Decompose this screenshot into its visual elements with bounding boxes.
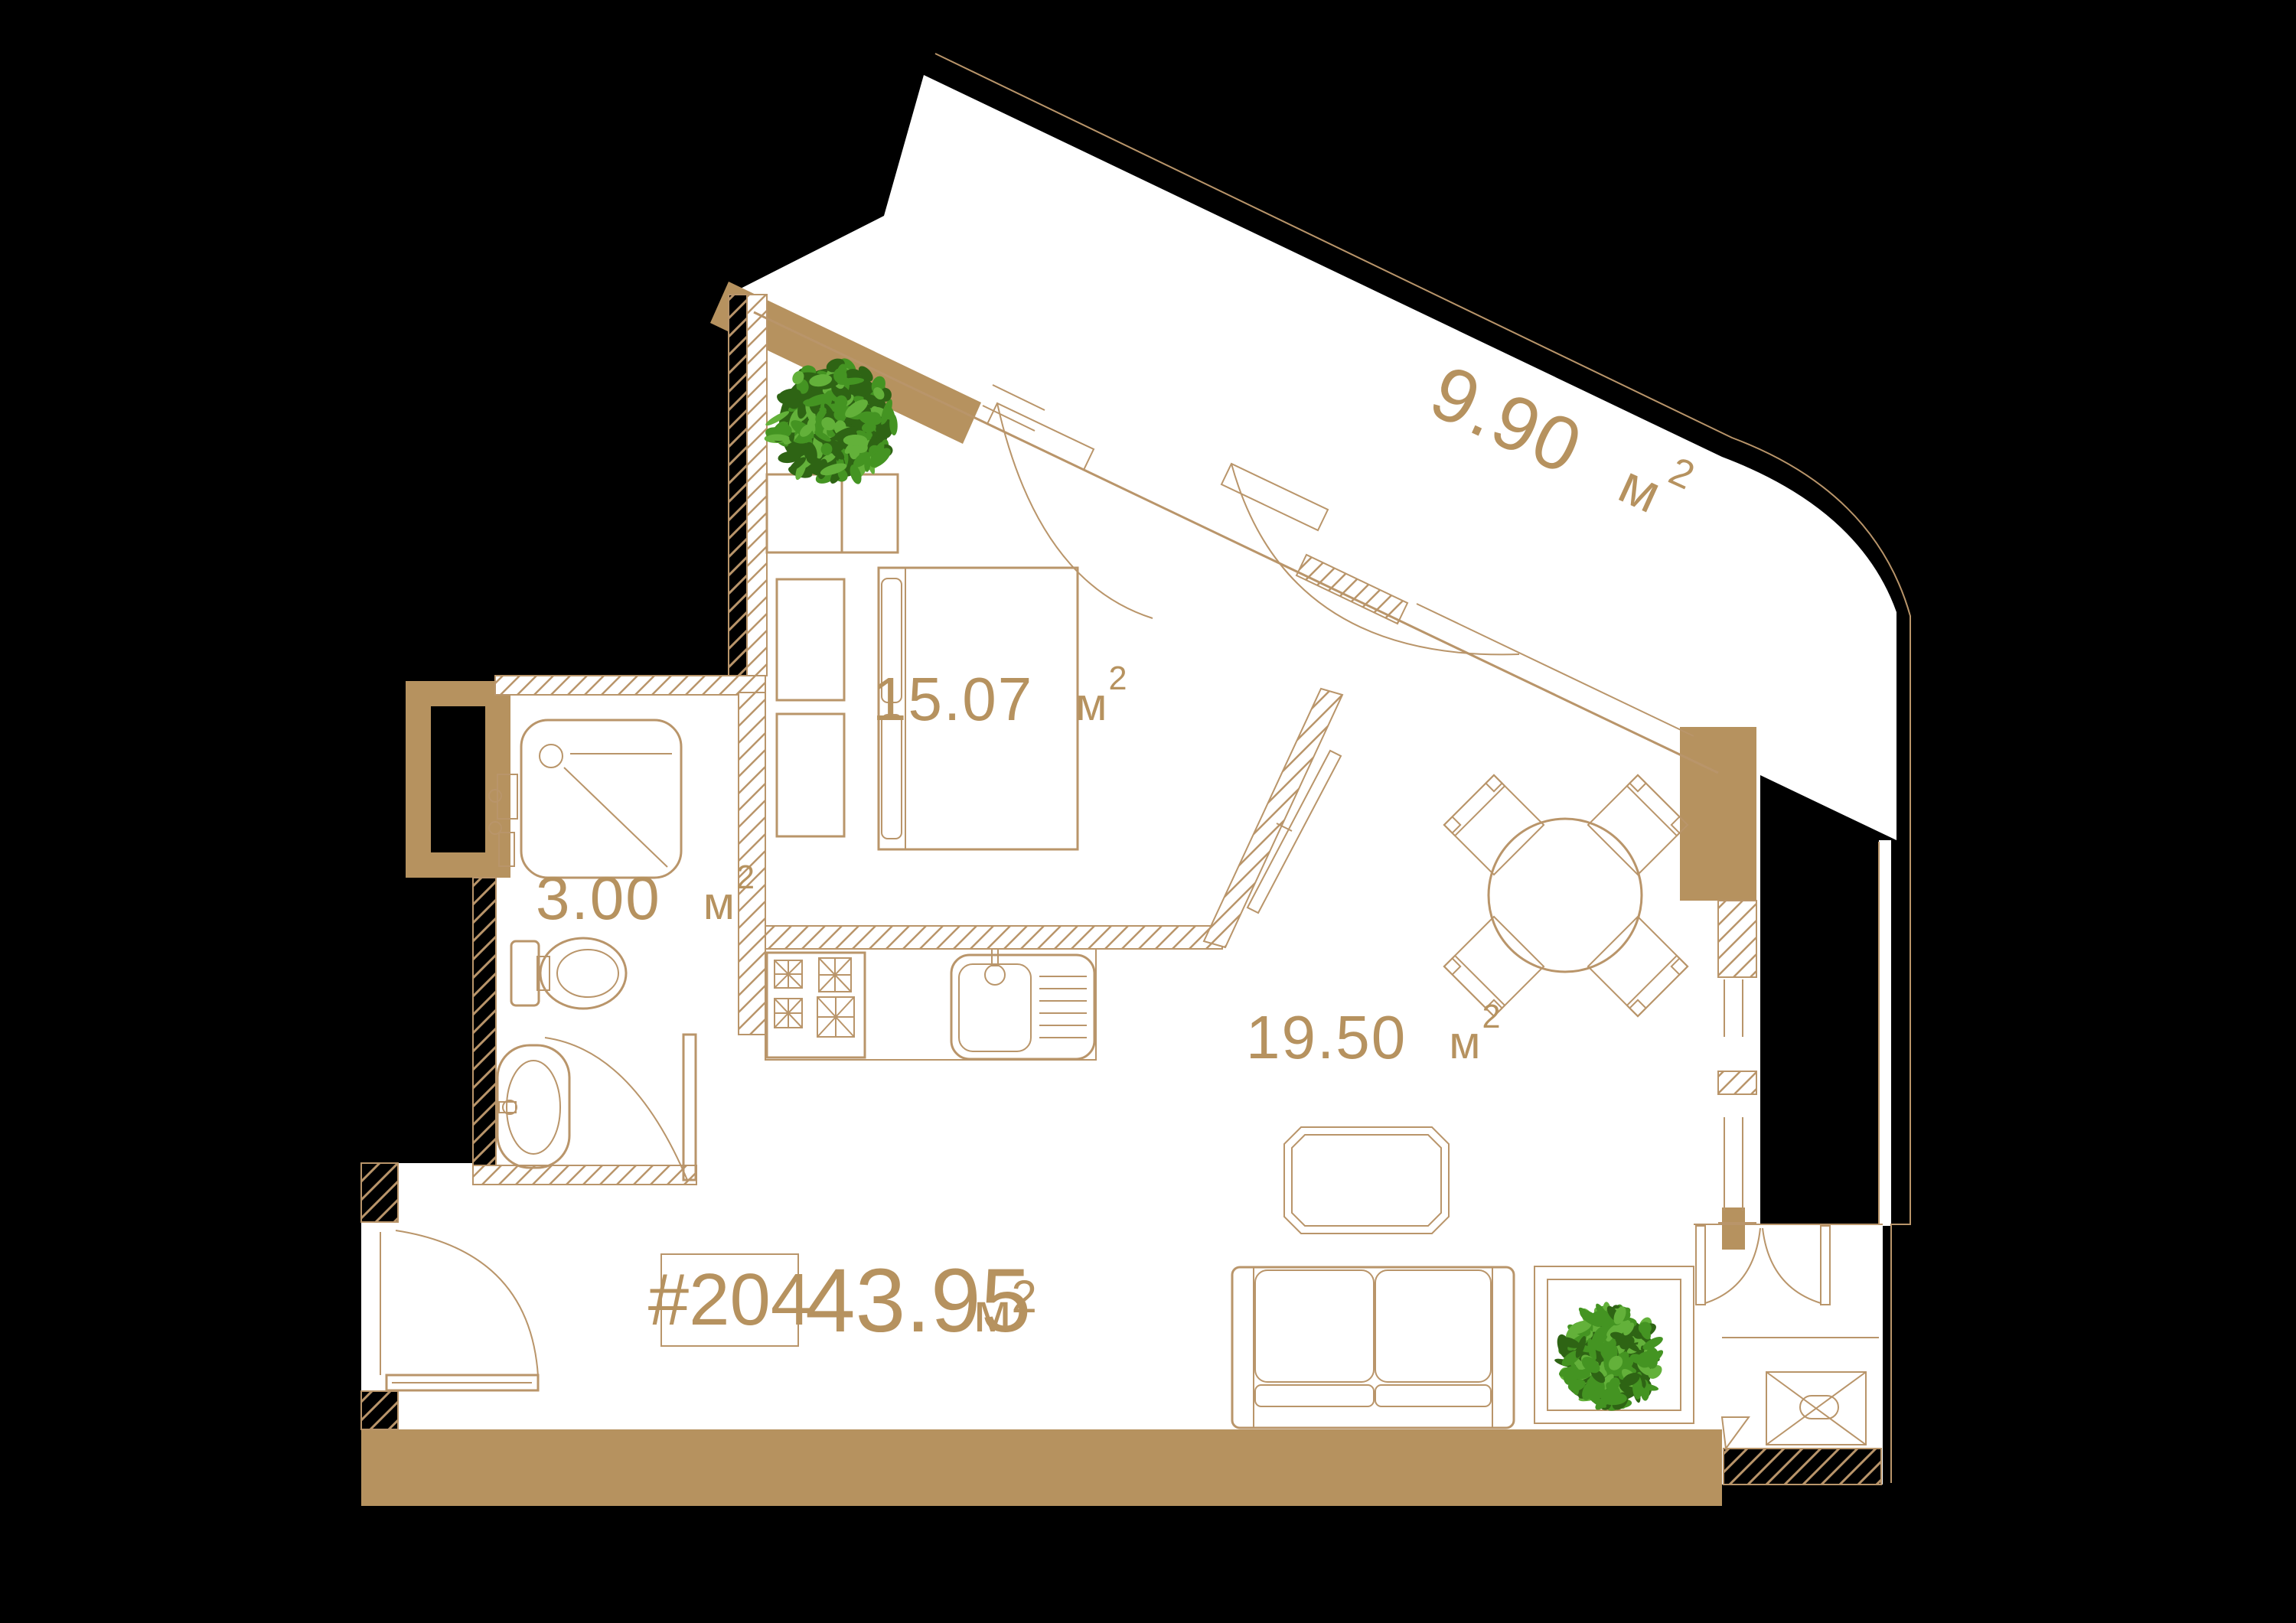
shaft-opening bbox=[431, 706, 485, 852]
wall-niche-stub bbox=[1722, 1207, 1745, 1250]
apartment-silhouette bbox=[361, 75, 1896, 1506]
room-label-living: 19.50 м2 bbox=[1246, 1002, 1500, 1073]
unit-area-unit: м2 bbox=[974, 1270, 1037, 1344]
unit-number-box: #204 bbox=[660, 1253, 799, 1347]
bathroom-area-value: 3.00 bbox=[536, 863, 661, 934]
bathroom-area-unit: м2 bbox=[703, 874, 755, 930]
floor-plan: 9.90 м2 15.07 м2 3.00 м2 19.50 м2 #204 4… bbox=[0, 0, 2296, 1623]
room-label-bathroom: 3.00 м2 bbox=[536, 863, 755, 934]
living-area-value: 19.50 bbox=[1246, 1002, 1407, 1073]
floor-plan-drawing bbox=[0, 0, 2296, 1623]
bedroom-area-value: 15.07 bbox=[872, 664, 1033, 735]
bedroom-area-unit: м2 bbox=[1075, 675, 1127, 731]
living-area-unit: м2 bbox=[1449, 1013, 1500, 1069]
unit-number: #204 bbox=[648, 1258, 812, 1342]
wall-bottom-band bbox=[361, 1429, 1722, 1506]
wall-pier-right bbox=[1680, 727, 1756, 901]
room-label-bedroom: 15.07 м2 bbox=[872, 664, 1127, 735]
